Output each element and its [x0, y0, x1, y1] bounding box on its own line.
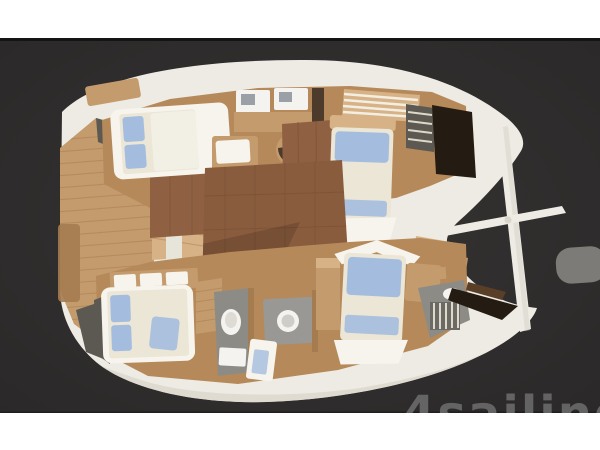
pillow: [124, 144, 147, 169]
double-bed: [101, 284, 196, 363]
pillow: [334, 131, 389, 163]
screenshot-canvas: 4sailing: [0, 0, 600, 450]
pillow: [111, 325, 132, 352]
sink: [241, 94, 255, 105]
yacht-deck-plan-render: 4sailing: [0, 0, 600, 450]
wardrobe: [316, 258, 340, 330]
sink: [279, 92, 292, 102]
blanket: [344, 315, 399, 336]
shower-mat: [251, 349, 269, 375]
pillow: [346, 257, 402, 298]
top-divider-line: [0, 38, 600, 41]
duvet-fold: [150, 110, 199, 171]
pillow: [110, 295, 131, 323]
cabin-window-glass: [432, 105, 476, 178]
head-shelf: [412, 267, 447, 281]
companionway-stairs: [406, 104, 434, 152]
bed-platform: [333, 336, 408, 368]
pillow: [122, 116, 145, 142]
dinghy-board: [555, 245, 600, 284]
blanket: [149, 316, 180, 351]
wardrobe-top: [316, 258, 340, 268]
cockpit-bench: [58, 224, 80, 302]
basin-bowl: [282, 315, 295, 328]
toilet-seat: [225, 312, 237, 328]
louvered-steps: [430, 302, 460, 330]
head-sink: [219, 347, 247, 366]
